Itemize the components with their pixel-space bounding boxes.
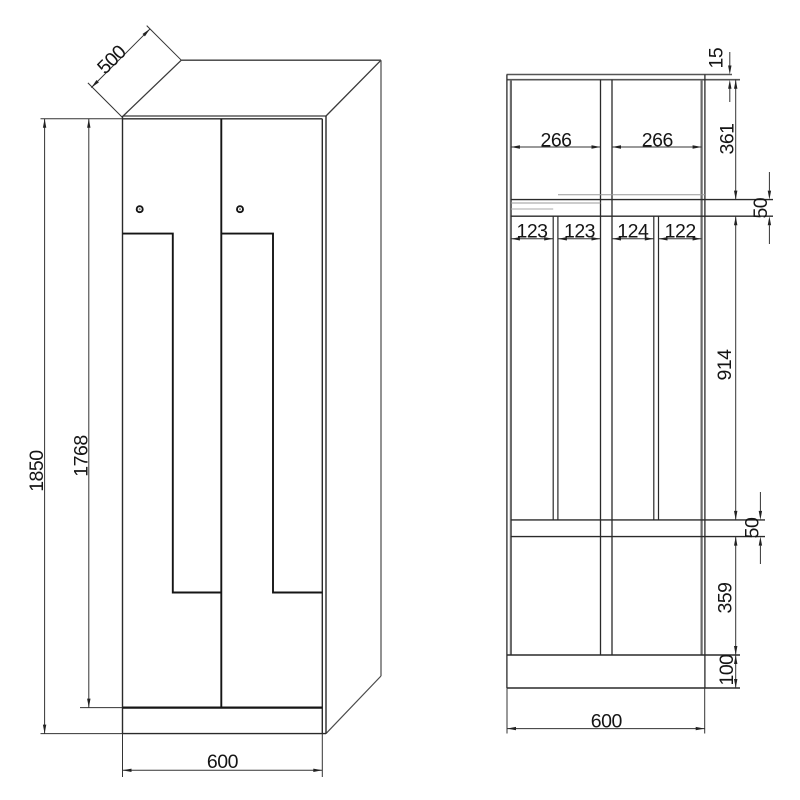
svg-text:1850: 1850 bbox=[26, 450, 48, 492]
svg-text:15: 15 bbox=[706, 47, 728, 68]
svg-text:266: 266 bbox=[540, 130, 571, 152]
svg-text:359: 359 bbox=[714, 582, 736, 613]
svg-text:124: 124 bbox=[617, 221, 649, 243]
svg-text:50: 50 bbox=[742, 517, 764, 538]
svg-text:266: 266 bbox=[642, 130, 673, 152]
svg-text:914: 914 bbox=[714, 349, 736, 381]
svg-text:50: 50 bbox=[750, 197, 772, 218]
svg-text:500: 500 bbox=[93, 41, 131, 79]
svg-text:123: 123 bbox=[516, 221, 547, 243]
svg-text:600: 600 bbox=[591, 710, 623, 732]
svg-text:100: 100 bbox=[716, 654, 738, 686]
svg-text:1768: 1768 bbox=[71, 435, 93, 476]
svg-text:600: 600 bbox=[207, 751, 239, 773]
svg-text:361: 361 bbox=[716, 123, 738, 154]
svg-text:122: 122 bbox=[665, 221, 696, 243]
svg-text:123: 123 bbox=[564, 221, 595, 243]
